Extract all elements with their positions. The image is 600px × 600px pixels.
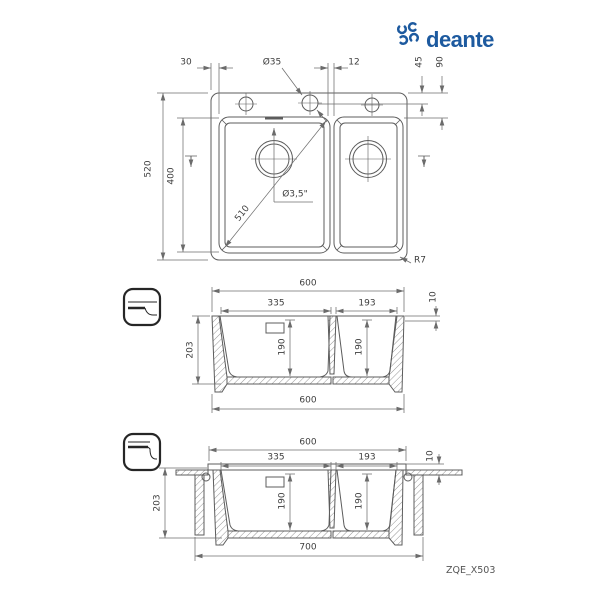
tap-holes	[235, 91, 383, 116]
sink-outline	[211, 93, 407, 260]
left-wall	[212, 316, 227, 392]
cabinet-left	[195, 475, 204, 535]
top-view-drawing	[185, 91, 430, 260]
dim-installed-left-depth-label: 190	[279, 492, 288, 509]
right-drain	[345, 136, 391, 182]
dim-section-width-bottom-label: 600	[299, 397, 316, 406]
right-bowl-profile	[337, 470, 396, 531]
dim-installed-cabinet-width-label: 700	[299, 544, 316, 553]
right-bowl-profile	[337, 316, 396, 377]
top-mount-icon	[124, 434, 160, 470]
model-code: ZQE_X503	[446, 565, 495, 576]
dim-section-left-bowl-label: 335	[267, 300, 284, 309]
left-bowl-profile	[221, 470, 331, 531]
center-marks	[185, 156, 430, 167]
dim-hole-spacing-label: 12	[348, 59, 359, 68]
left-wall	[213, 470, 228, 545]
dim-section-width-top-label: 600	[299, 280, 316, 289]
brand-name: deante	[426, 27, 494, 53]
dim-corner-radius-label: R7	[414, 257, 426, 266]
dim-installed-rim-height-label: 10	[427, 450, 436, 461]
dim-installed-left-bowl-label: 335	[267, 454, 284, 463]
sink-flange	[208, 464, 406, 470]
left-bowl-bottom	[227, 377, 331, 384]
dim-hole-center-offset-label: 45	[416, 56, 425, 67]
dim-hole-diameter-label: Ø35	[263, 59, 282, 68]
technical-drawing-page: deante 30 Ø35 12 45 90 520 400 510 Ø3,5"…	[0, 0, 600, 600]
dim-installed-right-bowl-label: 193	[358, 454, 375, 463]
dim-overall-depth-label: 520	[145, 160, 154, 177]
dim-installed-width-top-label: 600	[299, 439, 316, 448]
dim-bowl-top-offset-label: 90	[437, 56, 446, 67]
installed-view-drawing	[176, 464, 462, 545]
cabinet-right	[414, 475, 423, 535]
right-bowl-inner	[340, 123, 397, 247]
left-bowl-profile	[220, 316, 330, 377]
left-bowl-bottom	[228, 531, 331, 538]
countertop-right	[406, 470, 462, 475]
dim-section-left-depth-label: 190	[279, 338, 288, 355]
dim-drain-size-label: Ø3,5"	[282, 191, 308, 200]
brand-logo-icon	[394, 20, 422, 48]
dim-bowl-length-label: 400	[168, 167, 177, 184]
sink-technical-drawing	[0, 0, 600, 600]
right-wall	[389, 470, 403, 545]
overflow-opening	[266, 477, 284, 487]
right-bowl-bottom	[333, 531, 389, 538]
right-bowl-bottom	[333, 377, 389, 384]
dim-section-rim-height-label: 10	[430, 291, 439, 302]
dim-section-right-bowl-label: 193	[358, 300, 375, 309]
dim-installed-right-depth-label: 190	[356, 492, 365, 509]
dim-installed-total-height-label: 203	[154, 494, 163, 511]
dim-section-right-depth-label: 190	[356, 338, 365, 355]
dim-section-total-height-label: 203	[187, 341, 196, 358]
right-bowl-rim	[334, 117, 403, 253]
right-wall	[389, 316, 404, 392]
dim-edge-offset-label: 30	[180, 59, 191, 68]
overflow-opening	[266, 323, 284, 333]
section-view-drawing	[212, 316, 404, 392]
flush-mount-icon	[124, 289, 160, 325]
